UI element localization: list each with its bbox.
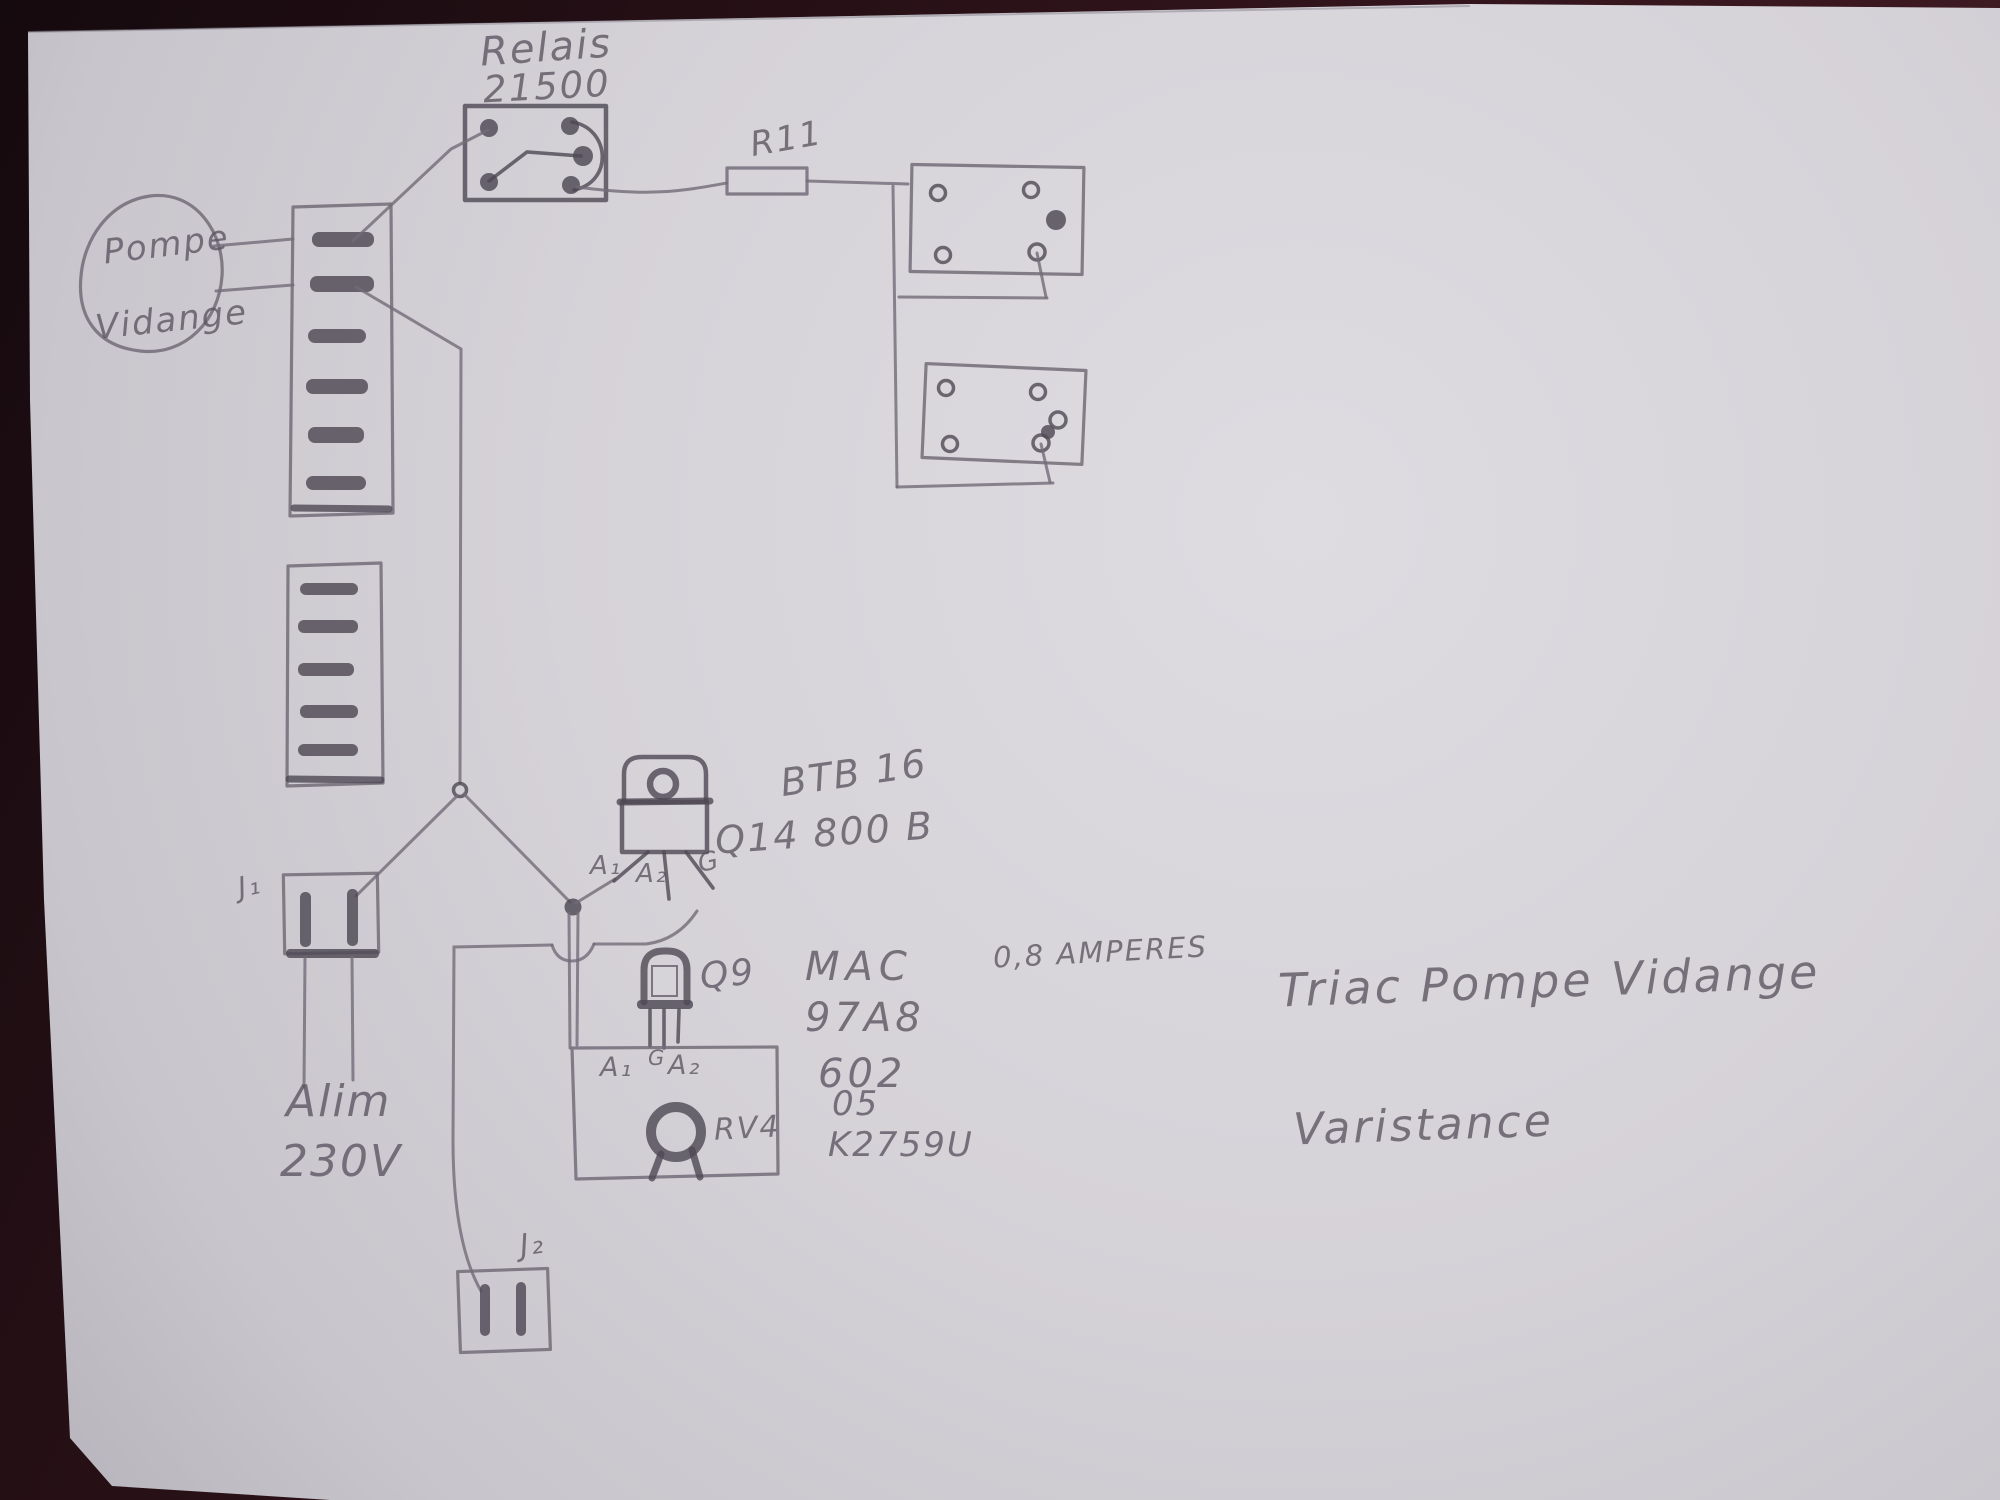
- connector-j2-label: J₂: [518, 1228, 547, 1261]
- note-varistance-label: Varistance: [1292, 1099, 1554, 1152]
- varistor-ref-label: RV4: [713, 1112, 781, 1145]
- driver-pin-a1-label: A₁: [600, 1054, 633, 1081]
- driver-pin-a2-label: A₂: [668, 1052, 701, 1079]
- triac-pin-a1-label: A₁: [590, 853, 622, 879]
- relay-model-label: 21500: [482, 65, 611, 109]
- varistor-part-line1: 05: [832, 1087, 879, 1121]
- driver-ref-label: Q9: [699, 955, 757, 996]
- triac-pin-a2-label: A₂: [636, 861, 668, 887]
- varistor-part-line2: K2759U: [828, 1128, 974, 1162]
- supply-label-line1: Alim: [286, 1080, 391, 1124]
- photo-of-hand-drawn-schematic: Relais 21500 Pompe Vidange R11 BTB 16 Q1…: [0, 0, 2000, 1500]
- driver-part-line1: MAC: [805, 947, 913, 987]
- schematic-drawing: [0, 0, 2000, 1500]
- driver-part-line2: 97A8: [805, 998, 925, 1038]
- driver-pin-g-label: G: [648, 1048, 666, 1069]
- supply-label-line2: 230V: [280, 1140, 402, 1184]
